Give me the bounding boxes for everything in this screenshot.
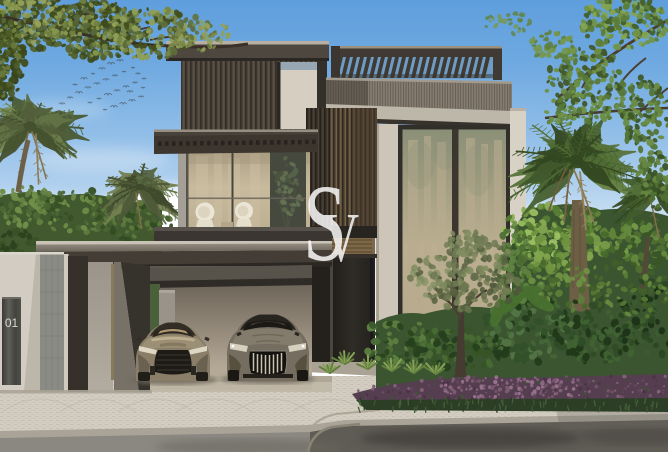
svg-text:01: 01	[5, 316, 19, 330]
